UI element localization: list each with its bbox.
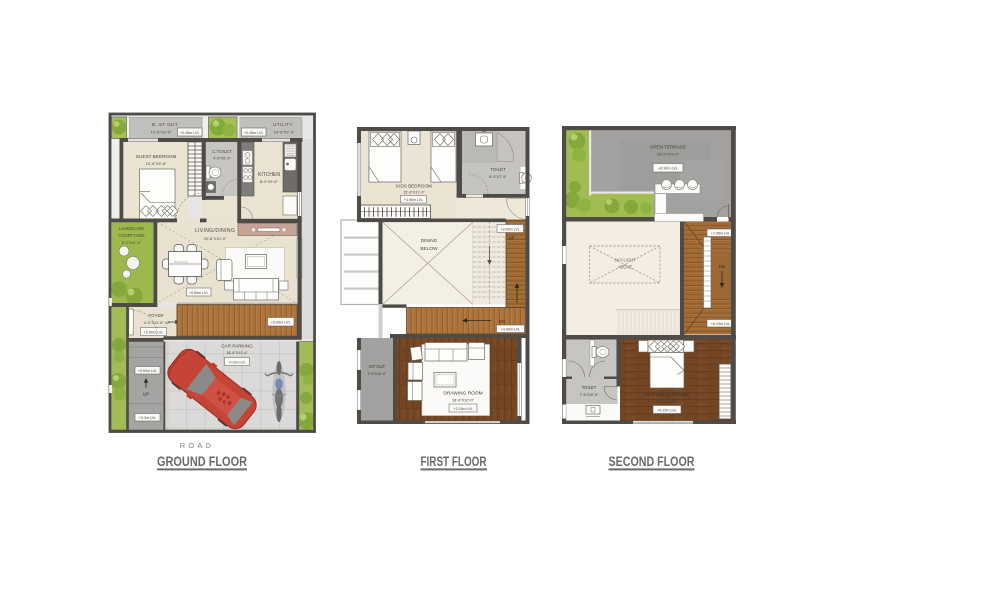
svg-text:ABOVE: ABOVE xyxy=(618,265,633,270)
svg-text:KITCHEN: KITCHEN xyxy=(258,172,280,178)
svg-text:20'-6"X10'-0": 20'-6"X10'-0" xyxy=(203,236,227,241)
svg-text:KIDS BEDROOM: KIDS BEDROOM xyxy=(396,184,432,189)
svg-text:+3.00m LVL: +3.00m LVL xyxy=(271,321,291,325)
svg-text:+6.90m LVL: +6.90m LVL xyxy=(658,167,678,171)
svg-text:+0.45m LVL: +0.45m LVL xyxy=(180,131,200,135)
svg-text:+3.90m LVL: +3.90m LVL xyxy=(404,198,423,202)
svg-text:+0.3m LVL: +0.3m LVL xyxy=(228,360,245,364)
svg-text:8'-0"X9'-6": 8'-0"X9'-6" xyxy=(260,180,278,184)
svg-text:10'-0"X2'-9": 10'-0"X2'-9" xyxy=(274,130,295,135)
svg-text:4'-6"X6'-3": 4'-6"X6'-3" xyxy=(213,157,231,161)
svg-text:23'-9"X11'-0": 23'-9"X11'-0" xyxy=(657,153,679,157)
svg-text:+6.15m LVL: +6.15m LVL xyxy=(711,322,730,326)
svg-text:5'-2"X11'-0": 5'-2"X11'-0" xyxy=(122,241,142,245)
svg-text:UP: UP xyxy=(508,236,514,241)
svg-text:10'-6"X9'-6": 10'-6"X9'-6" xyxy=(146,161,167,166)
svg-text:+0.3m LVL: +0.3m LVL xyxy=(139,416,156,420)
svg-text:+0.60m LVL: +0.60m LVL xyxy=(138,369,157,373)
svg-text:DINING: DINING xyxy=(421,238,438,244)
svg-text:+0.60m LVL: +0.60m LVL xyxy=(144,330,164,334)
svg-text:+0.60m LVL: +0.60m LVL xyxy=(189,291,209,295)
svg-text:4'-9"X13'-6" UP: 4'-9"X13'-6" UP xyxy=(144,321,171,325)
svg-text:GROUND FLOOR: GROUND FLOOR xyxy=(157,454,247,469)
svg-text:+3.00m LVL: +3.00m LVL xyxy=(501,328,520,332)
svg-text:COURTYARD: COURTYARD xyxy=(118,233,144,238)
svg-text:15'-6"X11'-0": 15'-6"X11'-0" xyxy=(403,191,425,195)
svg-text:FIRST FLOOR: FIRST FLOOR xyxy=(421,454,487,469)
svg-text:TOILET: TOILET xyxy=(582,385,597,390)
svg-text:UP: UP xyxy=(143,392,149,397)
svg-text:GUEST BEDROOM: GUEST BEDROOM xyxy=(136,154,177,159)
svg-text:SIT OUT: SIT OUT xyxy=(369,364,386,369)
svg-text:18'-6"X11'-6": 18'-6"X11'-6" xyxy=(226,351,248,355)
svg-text:16'-0"X10'-0": 16'-0"X10'-0" xyxy=(656,400,679,404)
svg-text:+0.45m LVL: +0.45m LVL xyxy=(244,131,264,135)
svg-text:DRAWING ROOM: DRAWING ROOM xyxy=(443,391,482,397)
svg-text:7'-6"X10'-0": 7'-6"X10'-0" xyxy=(580,393,599,397)
svg-text:10'-6"X2'-9": 10'-6"X2'-9" xyxy=(151,130,172,135)
svg-text:+7.05m LVL: +7.05m LVL xyxy=(711,232,730,236)
svg-text:DN: DN xyxy=(499,319,505,324)
svg-text:FOYER: FOYER xyxy=(148,313,163,318)
svg-text:SKY-LIGHT: SKY-LIGHT xyxy=(614,258,636,263)
svg-text:18'-6"X10'-0": 18'-6"X10'-0" xyxy=(452,399,475,403)
svg-text:DN: DN xyxy=(719,264,725,269)
svg-text:+6.15m LVL: +6.15m LVL xyxy=(657,408,676,412)
svg-text:LANDSCAPE: LANDSCAPE xyxy=(119,226,145,231)
svg-text:8'-0"X7'-9": 8'-0"X7'-9" xyxy=(489,175,507,179)
svg-text:TOILET: TOILET xyxy=(490,167,506,172)
svg-text:SECOND FLOOR: SECOND FLOOR xyxy=(609,454,695,469)
svg-text:+3.15m LVL: +3.15m LVL xyxy=(453,407,472,411)
svg-text:ROAD: ROAD xyxy=(180,441,214,450)
svg-text:CAR PARKING: CAR PARKING xyxy=(221,344,253,349)
svg-text:5'-6"X10'-0": 5'-6"X10'-0" xyxy=(368,372,387,376)
svg-text:B. ST OUT: B. ST OUT xyxy=(152,122,178,127)
svg-text:MASTER BEDROOM: MASTER BEDROOM xyxy=(645,392,689,397)
svg-text:OPEN TERRACE: OPEN TERRACE xyxy=(650,145,686,150)
svg-text:+3.90m LVL: +3.90m LVL xyxy=(501,227,520,231)
svg-text:C.TOILET: C.TOILET xyxy=(212,149,232,154)
svg-text:BELOW: BELOW xyxy=(420,246,438,252)
svg-text:LIVING/DINING: LIVING/DINING xyxy=(195,228,235,234)
svg-text:UTILITY: UTILITY xyxy=(273,122,293,127)
